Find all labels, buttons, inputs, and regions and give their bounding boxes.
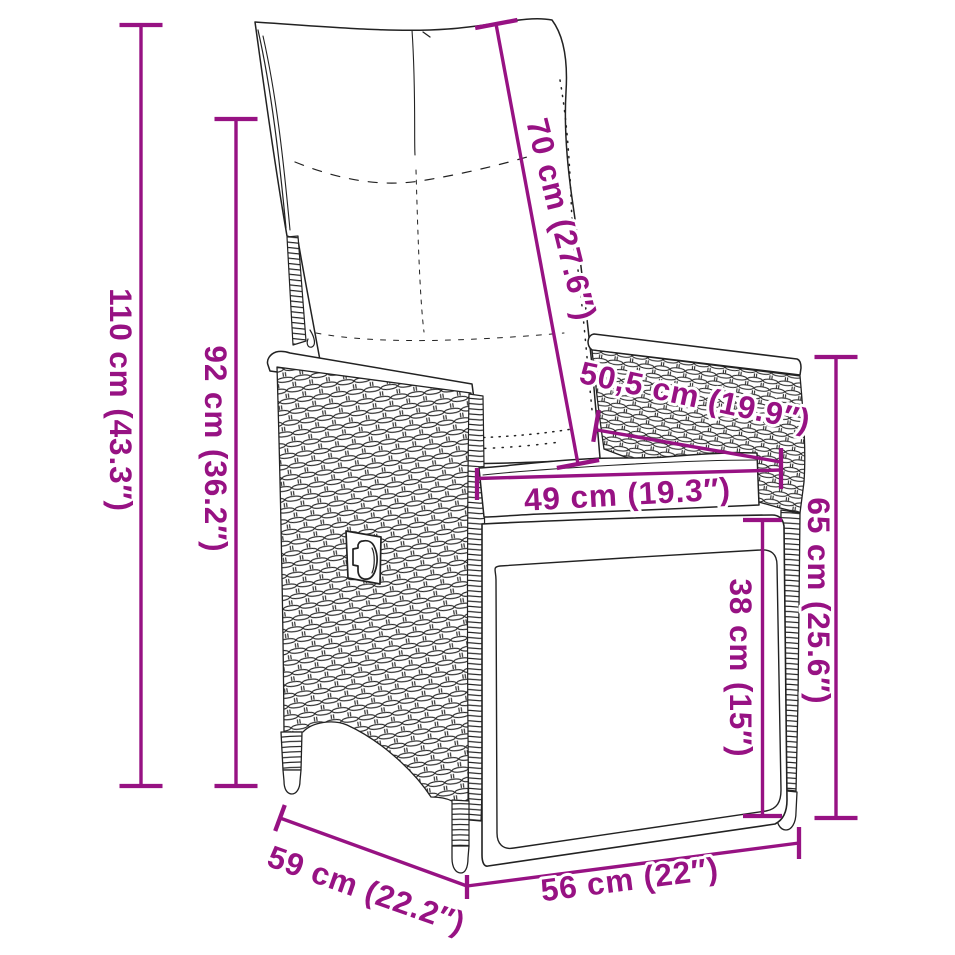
svg-text:65 cm (25.6″): 65 cm (25.6″) [801,497,837,704]
svg-text:110 cm (43.3″): 110 cm (43.3″) [103,288,139,512]
svg-text:38 cm (15″): 38 cm (15″) [723,578,759,757]
svg-text:92 cm (36.2″): 92 cm (36.2″) [198,345,234,552]
